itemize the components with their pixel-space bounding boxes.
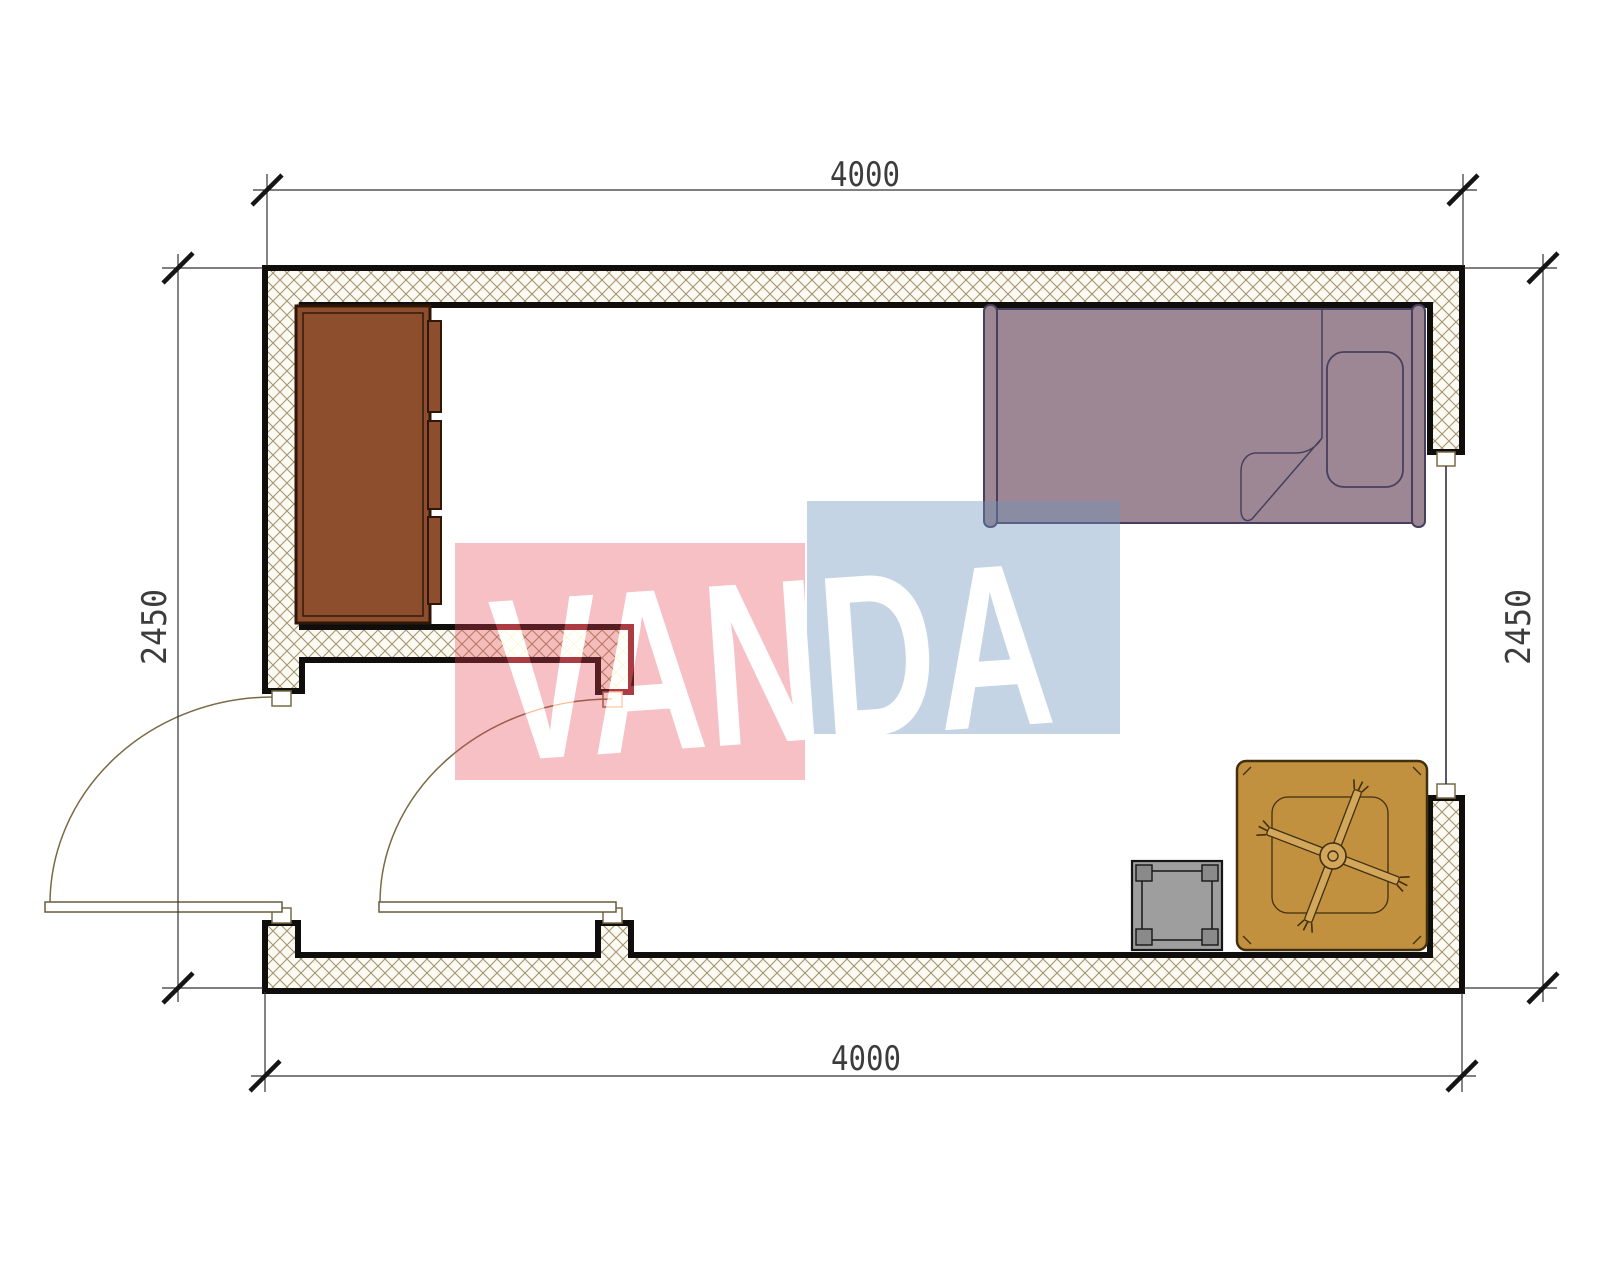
bed-footboard [1412,305,1425,527]
wardrobe-door-panel [428,421,441,509]
wardrobe-door-panel [428,517,441,604]
door-leaf [45,902,282,912]
wardrobe [296,306,441,623]
dim-label-left: 2450 [135,589,175,665]
stool-leg [1136,929,1152,945]
dim-label-bottom: 4000 [831,1039,901,1079]
watermark: VANDA [455,501,1120,811]
wardrobe-door-panel [428,321,441,412]
stool-leg [1202,865,1218,881]
window-frame [1437,784,1455,798]
dim-label-top: 4000 [830,155,900,195]
floor-plan-page: VANDA 4000 4000 2450 2450 [0,0,1600,1280]
low-table [1237,761,1427,950]
window-frame [1437,452,1455,466]
watermark-text: VANDA [484,514,1061,811]
stool [1132,861,1222,950]
fan-hub [1320,843,1346,869]
door-leaf [379,902,616,912]
floor-plan-canvas: VANDA 4000 4000 2450 2450 [0,0,1600,1280]
bed-headboard [984,305,997,527]
stool-leg [1202,929,1218,945]
stool-leg [1136,865,1152,881]
pillow [1327,352,1403,487]
single-bed [984,305,1425,527]
door-jamb [272,691,291,706]
dim-label-right: 2450 [1499,589,1539,665]
wardrobe-body [296,306,430,623]
